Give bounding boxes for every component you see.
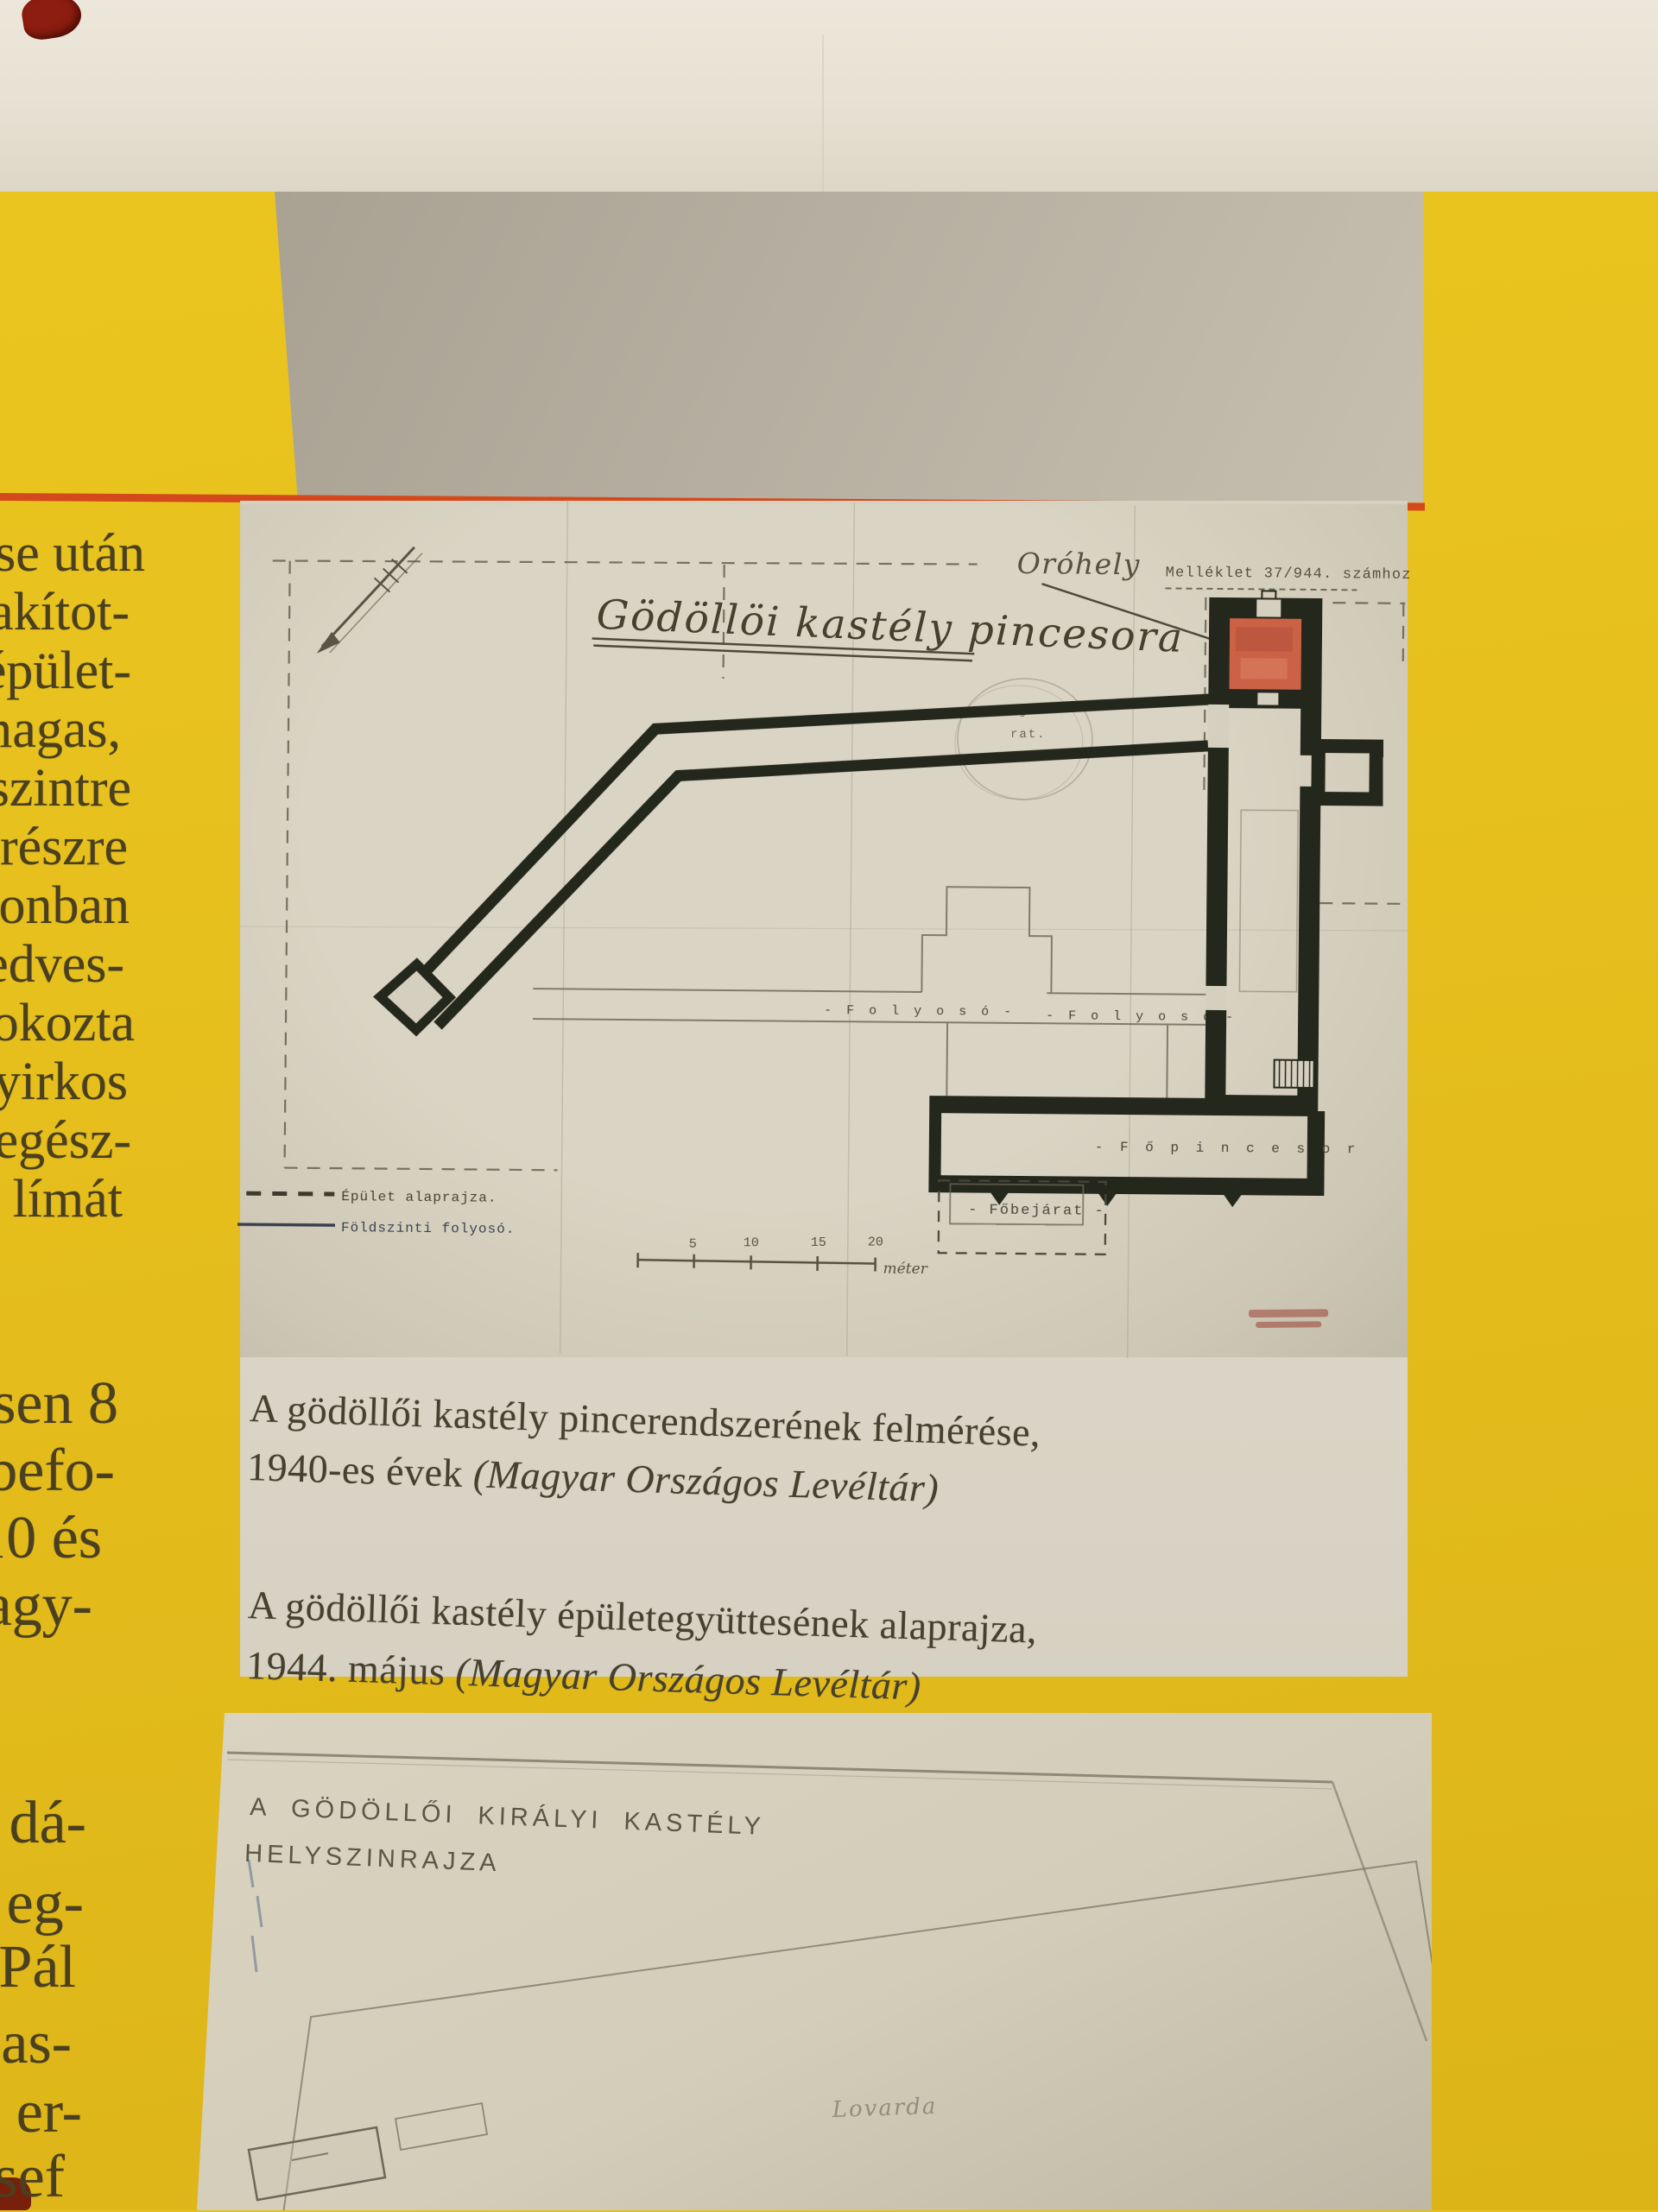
caption-2-date: 1944. május: [245, 1643, 456, 1694]
orohely-note: Oróhely: [1017, 547, 1142, 581]
site-plan-title: A GÖDÖLLŐI KIRÁLYI KASTÉLY HELYSZINRAJZA: [244, 1792, 766, 1887]
paper-crease: [240, 920, 1408, 937]
margin-text-fragment: límát: [13, 1169, 123, 1230]
top-wall-tick: [1262, 591, 1275, 598]
caption-1-date: 1940-es évek: [246, 1444, 473, 1495]
margin-text-fragment: yirkos: [0, 1052, 128, 1113]
caption-1-line-2: 1940-es évek (Magyar Országos Levéltár): [246, 1445, 940, 1511]
scale-tick-15: 15: [811, 1236, 826, 1250]
margin-text-fragment: 10 és: [0, 1504, 102, 1573]
archive-stamp-mark: [1249, 1309, 1328, 1328]
scale-bar: [638, 1253, 876, 1271]
margin-text-fragment: sen 8: [0, 1369, 118, 1438]
legend-solid-label: Földszinti folyosó.: [341, 1220, 516, 1237]
margin-text-fragment: dá-: [9, 1789, 86, 1858]
lovarda-label: Lovarda: [831, 2094, 938, 2123]
ground-floor-corridor-lines: [532, 804, 1298, 1099]
sheet-border-line-2: [227, 1760, 1332, 1789]
sheet-border-line: [227, 1753, 1332, 1782]
estate-plot-outline: [283, 1861, 1447, 2212]
plan-title-group: Gödöllöi kastély pincesora: [592, 591, 1185, 669]
site-plan-title-line-1: A GÖDÖLLŐI KIRÁLYI KASTÉLY: [250, 1792, 766, 1841]
fobejarat-label: - Főbejárat -: [968, 1202, 1105, 1219]
plan-legend: Épület alaprajza. Földszinti folyosó.: [237, 1187, 516, 1237]
margin-text-fragment: magas,: [0, 699, 121, 761]
site-plan-sheet: A GÖDÖLLŐI KIRÁLYI KASTÉLY HELYSZINRAJZA…: [197, 1713, 1432, 2210]
margin-text-fragment: er-: [16, 2078, 82, 2147]
margin-text-fragment: ése után: [0, 523, 145, 585]
margin-text-fragment: zonban: [0, 875, 130, 937]
margin-text-fragment: szintre: [0, 758, 131, 819]
photographed-exhibition-page: { "colors": { "page_yellow": "#e6bf1f", …: [0, 0, 1658, 2210]
scale-tick-20: 20: [868, 1235, 883, 1249]
margin-text-fragment: eg-: [7, 1869, 84, 1938]
margin-text-fragment: befo-: [0, 1437, 115, 1506]
caption-2-line-1: A gödöllői kastély épületegyüttesének al…: [247, 1583, 1037, 1652]
scale-tick-5: 5: [689, 1237, 697, 1252]
caption-1-line-1: A gödöllői kastély pincerendszerének fel…: [249, 1387, 1041, 1455]
site-plan-drawing: A GÖDÖLLŐI KIRÁLYI KASTÉLY HELYSZINRAJZA…: [197, 1713, 1432, 2210]
east-annex-walls: [1311, 739, 1383, 806]
outbuilding-shapes: [249, 2103, 487, 2200]
scale-unit: méter: [883, 1261, 927, 1278]
margin-text-fragment: egész-: [0, 1110, 131, 1172]
fopince-label: - F ő p i n c e s o r: [1095, 1140, 1360, 1158]
margin-text-fragment: alakítot-: [0, 582, 130, 643]
legend-solid-symbol: [237, 1224, 335, 1225]
staircase-symbol: [1274, 1060, 1313, 1088]
margin-text-fragment: edves-: [0, 934, 124, 995]
margin-text-fragment: sef: [0, 2143, 65, 2212]
caption-1-source: (Magyar Országos Levéltár): [472, 1451, 940, 1510]
gray-cover-sheet: [275, 192, 1423, 502]
margin-text-fragment: épület-: [0, 641, 131, 702]
blue-pencil-marks: [249, 1860, 262, 1972]
north-arrow-icon: [317, 547, 422, 654]
scale-tick-10: 10: [744, 1236, 759, 1250]
legend-dashed-symbol: [246, 1193, 334, 1194]
scale-labels: 5 10 15 20 méter: [688, 1234, 927, 1278]
margin-text-fragment: agy-: [0, 1571, 92, 1640]
cellar-corridor-walls: [408, 692, 1211, 1033]
bejarat-label-2: rat.: [1010, 728, 1047, 742]
margin-text-fragment: as-: [1, 2009, 72, 2078]
margin-text-fragment: Pál: [0, 1933, 76, 2002]
margin-text-fragment: részre: [0, 817, 128, 878]
wall-seam-line: [822, 35, 824, 193]
sheet-border-diagonal: [1332, 1782, 1427, 2041]
attachment-reference: Melléklet 37/944. számhoz: [1166, 565, 1412, 583]
paper-crease: [560, 500, 568, 1353]
white-display-panel: Gödöllöi kastély pincesora Oróhely Mellé…: [240, 501, 1408, 1677]
site-plan-title-line-2: HELYSZINRAJZA: [244, 1840, 502, 1877]
reference-underline: [1165, 588, 1357, 590]
legend-dashed-label: Épület alaprajza.: [341, 1188, 497, 1206]
margin-text-fragment: okozta: [0, 993, 135, 1054]
cellar-plan-drawing: Gödöllöi kastély pincesora Oróhely Mellé…: [240, 501, 1408, 1357]
wall-background-band: [0, 0, 1658, 193]
folyoso-label-left: - F o l y o s ó -: [824, 1003, 1015, 1020]
